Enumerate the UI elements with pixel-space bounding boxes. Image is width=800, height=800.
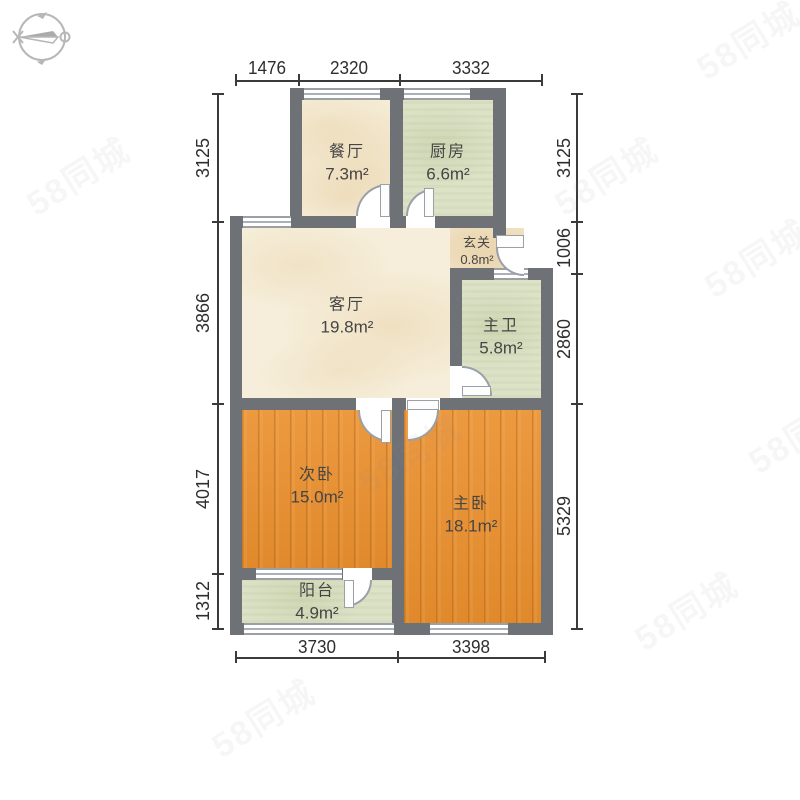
dim-label-right-1: 1006 [553, 216, 575, 280]
room-name: 主卫 [479, 317, 522, 338]
dim-tick [298, 74, 300, 86]
watermark: 58同城 [694, 206, 800, 308]
wall-bath-left [450, 268, 462, 366]
room-name: 厨房 [426, 143, 469, 164]
room-name: 餐厅 [325, 143, 368, 164]
room-label-balcony: 阳台 4.9m² [295, 582, 338, 625]
dim-label-left-1: 3866 [192, 281, 214, 345]
door-opening-balcony [343, 568, 372, 580]
window-kitchen [404, 88, 470, 100]
room-label-master-bedroom: 主卧 18.1m² [445, 495, 498, 538]
room-label-second-bedroom: 次卧 15.0m² [291, 466, 344, 509]
window-balcony-outer [244, 623, 394, 635]
room-area: 7.3m² [325, 163, 368, 185]
room-label-dining: 餐厅 7.3m² [325, 143, 368, 186]
watermark: 58同城 [738, 382, 800, 484]
room-label-living: 客厅 19.8m² [321, 296, 374, 339]
dim-label-left-0: 3125 [192, 126, 214, 190]
dim-tick [212, 93, 224, 95]
door-leaf-kitchen [424, 188, 434, 217]
room-area: 6.6m² [426, 163, 469, 185]
room-label-entry: 玄关 0.8m² [460, 235, 493, 269]
wall-outer-right [541, 268, 553, 635]
watermark: 58同城 [624, 559, 746, 661]
dim-label-left-2: 4017 [192, 457, 214, 521]
room-name: 主卧 [445, 495, 498, 516]
room-area: 15.0m² [291, 486, 344, 508]
door-leaf-master-bath [462, 386, 491, 396]
dim-tick [571, 403, 583, 405]
dim-tick [544, 651, 546, 663]
dim-tick [541, 74, 543, 86]
door-leaf-entrance [496, 235, 524, 248]
room-name: 客厅 [321, 296, 374, 317]
dim-line-left [217, 94, 219, 629]
room-area: 19.8m² [321, 316, 374, 338]
floor-plan-page: 餐厅 7.3m² 厨房 6.6m² 玄关 0.8m² 客厅 19.8m² 主卫 … [0, 0, 800, 800]
dim-label-left-3: 1312 [192, 569, 214, 633]
window-balcony-inner [256, 568, 342, 580]
dim-label-right-2: 2860 [553, 307, 575, 371]
dim-tick [397, 651, 399, 663]
dim-label-top-0: 1476 [237, 58, 298, 79]
compass-icon [8, 6, 74, 68]
dim-line-top [236, 80, 543, 82]
dim-tick [212, 221, 224, 223]
room-label-master-bath: 主卫 5.8m² [479, 317, 522, 360]
watermark: 58同城 [16, 124, 138, 226]
window-living [243, 216, 291, 228]
room-area: 0.8m² [460, 252, 493, 269]
room-area: 5.8m² [479, 337, 522, 359]
door-leaf-dining [380, 184, 390, 217]
wall-dining-left [290, 88, 302, 228]
door-opening-master-bath [450, 366, 462, 396]
dim-label-top-2: 3332 [441, 58, 502, 79]
room-area: 18.1m² [445, 515, 498, 537]
room-name: 玄关 [460, 235, 493, 252]
door-leaf-balcony [344, 580, 354, 608]
door-opening-dining [356, 216, 390, 228]
dim-label-bottom-1: 3398 [441, 637, 502, 658]
dim-tick [235, 651, 237, 663]
room-area: 4.9m² [295, 602, 338, 624]
dim-label-bottom-0: 3730 [287, 637, 348, 658]
dim-label-right-3: 5329 [553, 484, 575, 548]
room-name: 次卧 [291, 466, 344, 487]
door-opening-kitchen [406, 216, 435, 228]
window-dining [304, 88, 380, 100]
dim-tick [571, 628, 583, 630]
dim-tick [212, 403, 224, 405]
room-label-kitchen: 厨房 6.6m² [426, 143, 469, 186]
wall-dining-kitchen-divider [390, 100, 403, 216]
dim-tick [571, 93, 583, 95]
dim-tick [399, 74, 401, 86]
dim-label-top-1: 2320 [319, 58, 380, 79]
window-master-bedroom [430, 623, 508, 635]
door-opening-second-bedroom [356, 398, 392, 410]
room-name: 阳台 [295, 582, 338, 603]
watermark: 58同城 [201, 666, 323, 768]
watermark: 58同城 [686, 0, 800, 89]
